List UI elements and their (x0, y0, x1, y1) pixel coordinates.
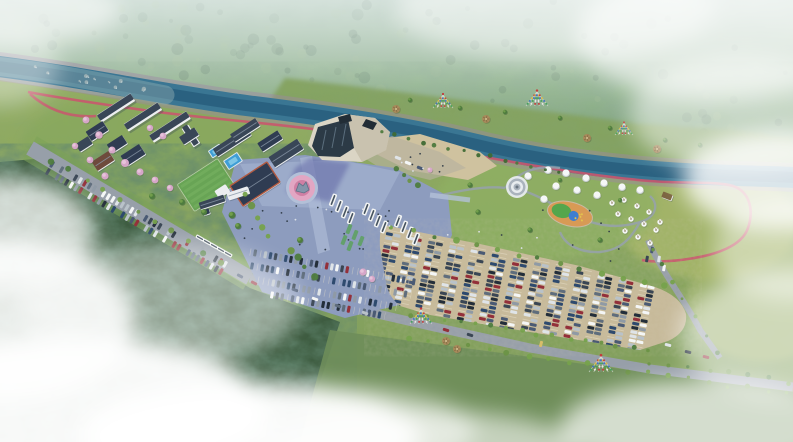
prayer-flag (605, 362, 607, 364)
aerial-rendering (0, 0, 793, 442)
prayer-flag (417, 315, 419, 317)
prayer-flag (624, 128, 626, 130)
tree-highlight (476, 210, 479, 213)
bush (311, 273, 318, 280)
blossom-highlight (152, 177, 155, 180)
bush (535, 255, 539, 259)
bush (408, 313, 413, 318)
prayer-flag (608, 365, 610, 367)
prayer-flag (619, 132, 621, 134)
foam (88, 77, 89, 78)
tree-highlight (408, 98, 410, 100)
person (399, 216, 401, 218)
bush (533, 333, 538, 338)
bush (576, 266, 581, 271)
prayer-flag (441, 103, 443, 105)
prayer-flag (441, 100, 443, 102)
bush (407, 179, 411, 183)
bush (474, 242, 479, 247)
person (388, 210, 390, 212)
bush (453, 237, 460, 244)
prayer-flag (617, 130, 619, 132)
prayer-flag (543, 100, 545, 102)
foam (86, 76, 87, 77)
prayer-flag (625, 125, 627, 127)
bush (168, 227, 174, 233)
prayer-flag (545, 103, 547, 105)
person (389, 225, 391, 227)
person (439, 171, 441, 173)
bush (287, 247, 294, 254)
prayer-flag (444, 105, 446, 107)
prayer-flag (535, 97, 537, 99)
prayer-flag (622, 128, 624, 130)
bush (651, 248, 655, 252)
plaza-decor (286, 172, 318, 204)
person (447, 234, 449, 236)
prayer-flag (603, 359, 605, 361)
bush (426, 339, 429, 342)
flag-pole-top (536, 89, 538, 91)
prayer-flag (537, 100, 539, 102)
prayer-flag (437, 105, 439, 107)
prayer-flag (619, 128, 621, 130)
prayer-flag (631, 132, 633, 134)
prayer-flag (422, 321, 424, 323)
person (411, 164, 413, 166)
bush (504, 326, 508, 330)
foam (95, 79, 96, 80)
person (478, 231, 480, 233)
prayer-flag (595, 365, 597, 367)
bush (488, 153, 493, 158)
blossom-highlight (122, 160, 126, 164)
prayer-flag (419, 318, 421, 320)
person (251, 228, 253, 230)
bush (432, 235, 436, 239)
prayer-flag (621, 128, 623, 130)
prayer-flag (530, 103, 532, 105)
person (317, 207, 319, 209)
bush (248, 202, 255, 209)
person (422, 168, 424, 170)
blossom-highlight (87, 157, 90, 160)
prayer-flag (445, 100, 447, 102)
person (299, 244, 301, 246)
person (387, 220, 389, 222)
bush (488, 323, 493, 328)
bush (661, 282, 667, 288)
person (325, 209, 327, 211)
bush (402, 173, 406, 177)
bush (394, 166, 399, 171)
bush (392, 132, 396, 136)
prayer-flag (529, 100, 531, 102)
bush (660, 262, 664, 266)
bush (86, 179, 90, 183)
person (618, 248, 620, 250)
bush (613, 344, 618, 349)
prayer-flag (414, 321, 416, 323)
tree-highlight (598, 238, 601, 241)
bush (443, 319, 446, 322)
prayer-flag (439, 100, 441, 102)
hut-crown (395, 108, 397, 110)
prayer-flag (447, 100, 449, 102)
bush (517, 254, 522, 259)
bush (558, 261, 563, 266)
prayer-flag (603, 362, 605, 364)
prayer-flag (625, 132, 627, 134)
flag-pole-top (442, 93, 444, 95)
bush (625, 370, 630, 375)
blossom-highlight (160, 133, 163, 136)
bush (666, 363, 670, 367)
hut-crown (586, 137, 588, 139)
person (419, 153, 421, 155)
bush (670, 280, 675, 285)
person (401, 162, 403, 164)
hut-crown (485, 118, 487, 120)
bush (557, 171, 560, 174)
prayer-flag (542, 103, 544, 105)
bush (642, 279, 648, 285)
prayer-flag (423, 315, 425, 317)
prayer-flag (594, 369, 596, 371)
foam (109, 82, 110, 83)
prayer-flag (443, 100, 445, 102)
tree-highlight (149, 193, 152, 196)
rock (142, 87, 146, 91)
bush (295, 254, 302, 261)
foam (116, 88, 117, 89)
tree-highlight (608, 126, 610, 128)
mandala-plaza (516, 186, 519, 189)
scene-canvas (0, 0, 793, 442)
prayer-flag (434, 105, 436, 107)
blossom-highlight (102, 173, 106, 177)
bush (527, 354, 533, 360)
prayer-flag (537, 97, 539, 99)
bush (117, 197, 122, 202)
foam (144, 89, 145, 90)
prayer-flag (539, 97, 541, 99)
blossom-highlight (167, 185, 170, 188)
person (262, 210, 264, 212)
flag-pole-top (623, 121, 625, 123)
prayer-flag (443, 103, 445, 105)
bush (186, 239, 191, 244)
prayer-flag (622, 132, 624, 134)
bush (432, 143, 437, 148)
prayer-flag (626, 128, 628, 130)
bush (463, 149, 466, 152)
tree-highlight (235, 223, 238, 226)
tree-highlight (558, 178, 560, 180)
person (536, 237, 538, 239)
bush (503, 159, 507, 163)
bush (255, 215, 260, 220)
prayer-flag (424, 318, 426, 320)
tree-highlight (229, 212, 233, 216)
person (442, 165, 444, 167)
blossom-highlight (96, 132, 100, 136)
prayer-flag (411, 321, 413, 323)
person (608, 231, 610, 233)
bush (302, 265, 306, 269)
prayer-flag (415, 315, 417, 317)
prayer-flag (616, 132, 618, 134)
bush (474, 322, 478, 326)
prayer-flag (540, 100, 542, 102)
person (377, 213, 379, 215)
blossom-highlight (360, 269, 364, 273)
person (521, 247, 523, 249)
bush (406, 336, 412, 342)
prayer-flag (592, 365, 594, 367)
bush (65, 166, 71, 172)
bush (476, 153, 480, 157)
prayer-flag (624, 130, 626, 132)
bush (466, 343, 470, 347)
bush (600, 341, 604, 345)
prayer-flag (539, 94, 541, 96)
blossom-highlight (72, 143, 75, 146)
bush (515, 162, 518, 165)
prayer-flag (598, 365, 600, 367)
prayer-flag (620, 130, 622, 132)
tree-highlight (179, 199, 182, 202)
bush (266, 234, 271, 239)
person (412, 170, 414, 172)
prayer-flag (438, 103, 440, 105)
prayer-flag (413, 318, 415, 320)
person (362, 208, 364, 210)
blossom-highlight (109, 147, 113, 151)
bush (48, 158, 54, 164)
prayer-flag (601, 365, 603, 367)
prayer-flag (610, 369, 612, 371)
person (589, 210, 591, 212)
prayer-flag (599, 362, 601, 364)
bush (488, 347, 492, 351)
tree-highlight (458, 106, 460, 108)
prayer-flag (532, 100, 534, 102)
prayer-flag (605, 365, 607, 367)
prayer-flag (598, 369, 600, 371)
flag-pole-top (420, 307, 422, 309)
tree-highlight (503, 110, 505, 112)
bush (446, 147, 450, 151)
hut-crown (445, 340, 447, 342)
person (286, 220, 288, 222)
prayer-flag (446, 103, 448, 105)
flag-pole-top (600, 354, 603, 357)
bush (100, 187, 105, 192)
tree-highlight (468, 183, 471, 186)
prayer-flag (627, 130, 629, 132)
bush (686, 365, 689, 368)
bush (646, 349, 650, 353)
bush (407, 137, 411, 141)
person (385, 215, 387, 217)
bush (520, 328, 525, 333)
blossom-highlight (137, 169, 141, 173)
person (295, 219, 297, 221)
bush (546, 357, 550, 361)
cloud (20, 243, 300, 367)
bush (243, 192, 248, 197)
person (542, 209, 544, 211)
bush (380, 130, 383, 133)
prayer-flag (595, 362, 597, 364)
prayer-flag (419, 315, 421, 317)
person (244, 237, 246, 239)
person (501, 234, 503, 236)
blossom-highlight (428, 168, 431, 171)
bush (459, 320, 462, 323)
prayer-flag (447, 105, 449, 107)
foam (121, 81, 122, 82)
person (610, 260, 612, 262)
prayer-flag (451, 105, 453, 107)
person (331, 211, 333, 213)
prayer-flag (538, 103, 540, 105)
prayer-flag (449, 103, 451, 105)
blossom-highlight (147, 125, 150, 128)
bush (503, 350, 509, 356)
prayer-flag (445, 97, 447, 99)
prayer-flag (416, 318, 418, 320)
prayer-flag (629, 130, 631, 132)
prayer-flag (628, 132, 630, 134)
person (572, 244, 574, 246)
bush (584, 338, 588, 342)
tree-highlight (528, 228, 531, 231)
bush (681, 297, 684, 300)
bush (495, 247, 500, 252)
prayer-flag (622, 130, 624, 132)
bush (585, 360, 591, 366)
prayer-flag (421, 315, 423, 317)
bush (415, 182, 421, 188)
bush (646, 370, 650, 374)
bush (632, 345, 637, 350)
prayer-flag (627, 128, 629, 130)
bush (665, 373, 670, 378)
bush (569, 337, 574, 342)
prayer-flag (527, 103, 529, 105)
prayer-flag (601, 362, 603, 364)
bush (549, 333, 554, 338)
blossom-highlight (369, 276, 372, 279)
bush (259, 224, 265, 230)
bush (136, 210, 140, 214)
person (347, 211, 349, 213)
tree-highlight (558, 116, 560, 118)
foam (87, 82, 88, 83)
prayer-flag (541, 97, 543, 99)
bush (621, 276, 626, 281)
bush (647, 362, 650, 365)
person (600, 222, 602, 224)
tree-highlight (297, 237, 300, 240)
hut-crown (456, 348, 458, 350)
bush (567, 361, 572, 366)
tree-highlight (201, 209, 204, 212)
bush (544, 168, 547, 171)
tree-highlight (618, 198, 620, 200)
bush (687, 376, 690, 379)
bush (152, 219, 157, 224)
prayer-flag (533, 97, 535, 99)
person (281, 212, 283, 214)
prayer-flag (423, 312, 425, 314)
prayer-flag (590, 369, 592, 371)
prayer-flag (606, 369, 608, 371)
person (324, 249, 326, 251)
prayer-flag (427, 318, 429, 320)
person (359, 248, 361, 250)
bush (421, 141, 426, 146)
prayer-flag (531, 97, 533, 99)
prayer-flag (425, 315, 427, 317)
person (362, 248, 364, 250)
prayer-flag (602, 369, 604, 371)
prayer-flag (421, 318, 423, 320)
person (410, 156, 412, 158)
person (348, 239, 350, 241)
prayer-flag (436, 103, 438, 105)
blossom-highlight (83, 117, 87, 121)
prayer-flag (597, 362, 599, 364)
prayer-flag (438, 100, 440, 102)
prayer-flag (440, 105, 442, 107)
bush (411, 228, 416, 233)
bush (599, 271, 605, 277)
foam (80, 81, 81, 82)
person (343, 233, 345, 235)
prayer-flag (534, 103, 536, 105)
prayer-flag (429, 321, 431, 323)
person (295, 205, 297, 207)
bush (529, 165, 532, 168)
prayer-flag (418, 321, 420, 323)
prayer-flag (535, 100, 537, 102)
prayer-flag (426, 321, 428, 323)
